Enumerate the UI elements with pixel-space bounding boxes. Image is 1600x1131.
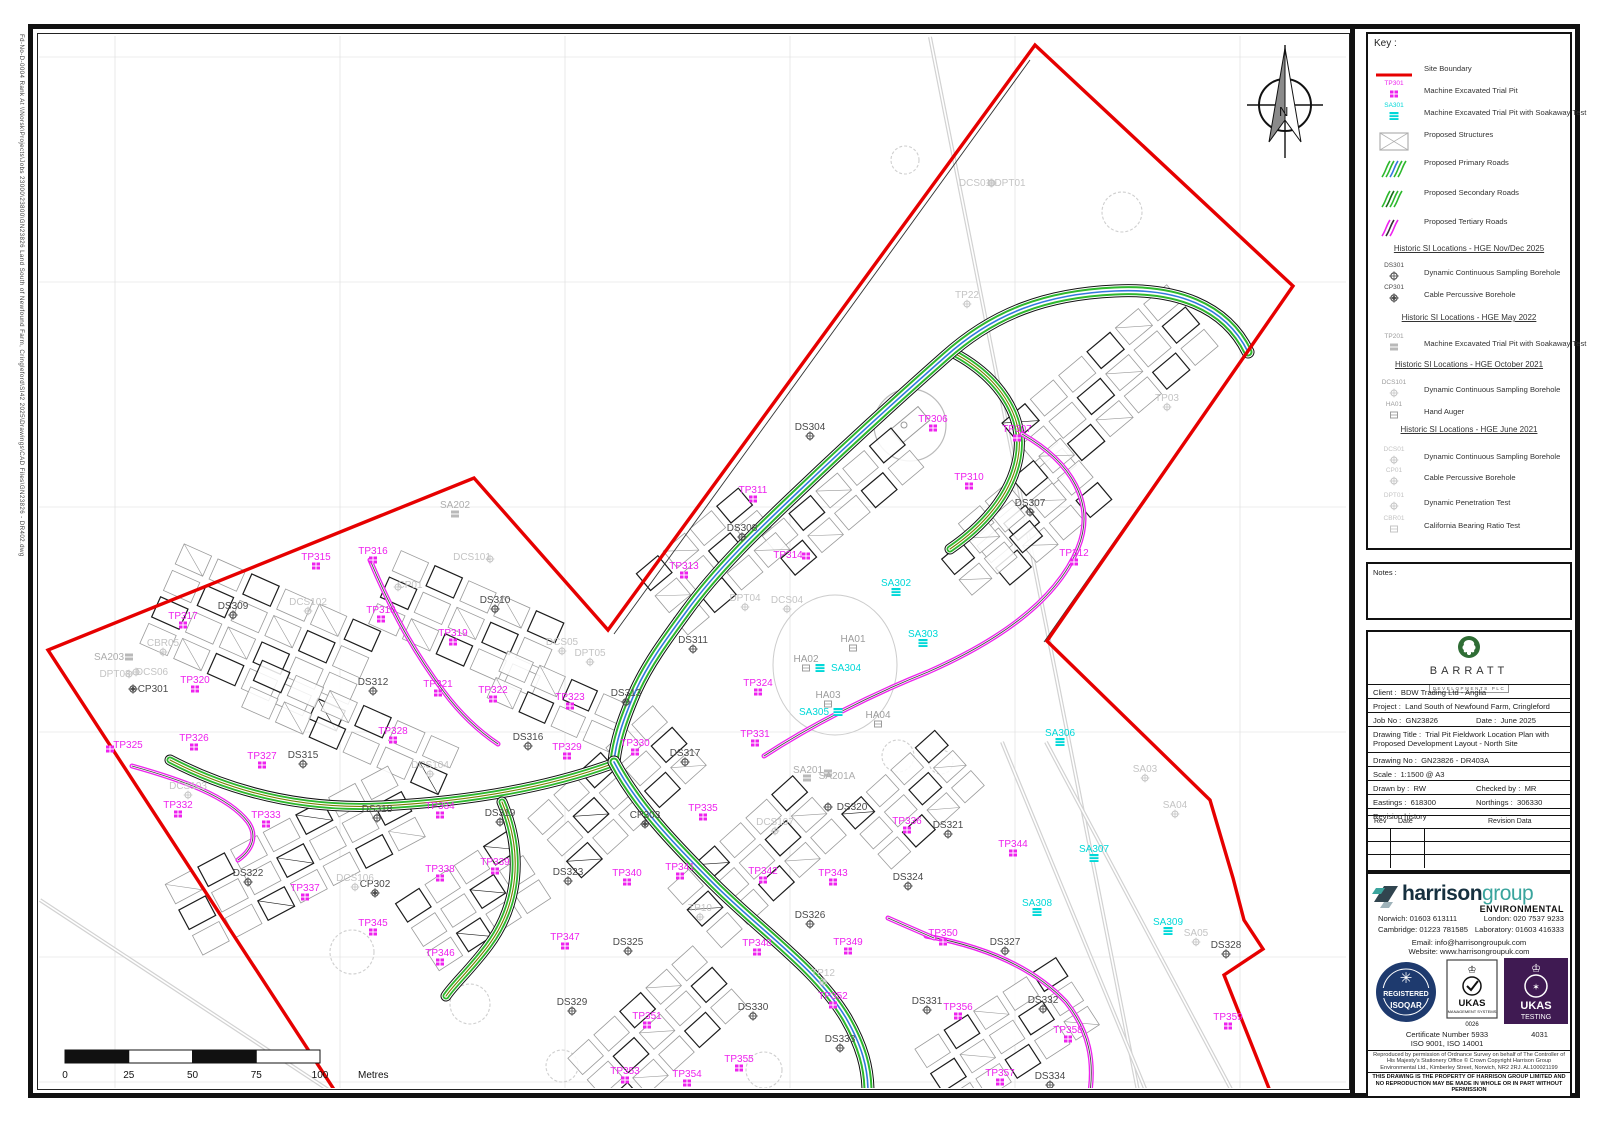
scale-value: 1:1500 @ A3 — [1400, 770, 1444, 779]
svg-text:TP357: TP357 — [985, 1068, 1015, 1079]
svg-text:♔: ♔ — [1531, 962, 1541, 975]
svg-text:CP01: CP01 — [1386, 467, 1403, 474]
map-marker-SA05: SA05 — [1184, 928, 1209, 946]
svg-text:CP01: CP01 — [397, 580, 422, 591]
svg-text:CBR05: CBR05 — [147, 638, 180, 649]
svg-text:TP318: TP318 — [366, 605, 396, 616]
marker-glyph-tp — [829, 879, 837, 886]
prim-icon — [1372, 147, 1420, 181]
map-marker-TP359: TP359 — [1213, 1012, 1243, 1030]
job-value: GN23826 — [1406, 716, 1439, 725]
marker-glyph-tp — [1064, 1036, 1072, 1043]
scale-label: Scale : — [1373, 770, 1396, 779]
marker-glyph-tp — [491, 868, 499, 875]
notes-label: Notes : — [1373, 568, 1397, 577]
marker-glyph-tp — [939, 939, 947, 946]
marker-glyph-gs — [125, 654, 133, 661]
cp-icon: CP301 — [1372, 279, 1420, 313]
drawing-title-label: Drawing Title : — [1373, 730, 1421, 739]
marker-glyph-tp — [683, 1080, 691, 1087]
tertiary-road — [888, 918, 934, 938]
map-marker-TP349: TP349 — [833, 937, 863, 955]
map-marker-DS304: DS304 — [795, 422, 826, 441]
svg-text:TP331: TP331 — [740, 729, 770, 740]
svg-text:TP321: TP321 — [423, 679, 453, 690]
map-marker-TP306: TP306 — [918, 414, 948, 432]
map-marker-DS321: DS321 — [933, 820, 964, 839]
northings-value: 306330 — [1517, 798, 1542, 807]
svg-text:TP306: TP306 — [918, 414, 948, 425]
eastings-value: 618300 — [1411, 798, 1436, 807]
certificate-row: Certificate Number 5933 ISO 9001, ISO 14… — [1368, 1030, 1570, 1050]
key-item-TP201: TP201Machine Excavated Trial Pit with So… — [1368, 336, 1570, 358]
marker-glyph-tp — [676, 873, 684, 880]
svg-text:MANAGEMENT SYSTEMS: MANAGEMENT SYSTEMS — [1448, 1009, 1497, 1014]
svg-text:♔: ♔ — [1468, 965, 1477, 976]
marker-glyph-tp — [631, 749, 639, 756]
key-item-sec: Proposed Secondary Roads — [1368, 185, 1570, 207]
site-plan-drawing: { "colors":{"red":"#e60000","magenta":"#… — [0, 0, 1600, 1131]
svg-text:TP336: TP336 — [892, 816, 922, 827]
key-header: Historic SI Locations - HGE June 2021 — [1368, 425, 1570, 434]
svg-text:DPT05: DPT05 — [574, 648, 606, 659]
revision-empty-row — [1368, 855, 1570, 868]
marker-glyph-tp — [802, 553, 810, 560]
harrison-group-block: harrisongroup ENVIRONMENTAL Norwich: 016… — [1366, 872, 1572, 1098]
svg-text:TP346: TP346 — [425, 948, 455, 959]
map-marker-SA303: SA303 — [908, 629, 938, 647]
key-header: Historic SI Locations - HGE May 2022 — [1368, 313, 1570, 322]
marker-glyph-ha — [850, 645, 857, 651]
map-marker-TP326: TP326 — [179, 733, 209, 751]
marker-glyph-tp — [436, 959, 444, 966]
marker-glyph-sa — [1164, 927, 1173, 935]
map-marker-CBR05: CBR05 — [147, 638, 180, 656]
key-header: Historic SI Locations - HGE October 2021 — [1368, 360, 1570, 369]
key-item-label: Dynamic Continuous Sampling Borehole — [1424, 452, 1560, 461]
svg-text:TP343: TP343 — [818, 868, 848, 879]
svg-text:TP324: TP324 — [743, 678, 773, 689]
drawing-no-label: Drawing No : — [1373, 756, 1417, 765]
lb-icon: CBR01 — [1372, 510, 1420, 544]
map-marker-TP331: TP331 — [740, 729, 770, 747]
marker-glyph-tp — [1009, 850, 1017, 857]
marker-glyph-tp — [449, 639, 457, 646]
marker-glyph-tp — [566, 703, 574, 710]
map-marker-DCS01: DCS01 — [959, 178, 996, 189]
harrison-email: Email: info@harrisongroupuk.com — [1368, 938, 1570, 947]
svg-text:SA301: SA301 — [1384, 102, 1404, 109]
svg-text:TP347: TP347 — [550, 932, 580, 943]
gs-icon: TP201 — [1372, 328, 1420, 362]
map-marker-SA308: SA308 — [1022, 898, 1052, 916]
svg-text:SA203: SA203 — [94, 652, 124, 663]
key-item-label: Dynamic Penetration Test — [1424, 498, 1510, 507]
map-marker-TP316: TP316 — [358, 546, 388, 564]
marker-glyph-sa — [1056, 738, 1065, 746]
map-marker-TP324: TP324 — [743, 678, 773, 696]
site-plan-map: TP306TP307TP310TP311TP312TP313TP314TP315… — [0, 0, 1600, 1131]
date-col: Date — [1398, 818, 1413, 825]
rev-col: Rev — [1374, 818, 1386, 825]
svg-text:TP351: TP351 — [632, 1011, 662, 1022]
svg-text:TP330: TP330 — [620, 738, 650, 749]
svg-text:SA304: SA304 — [831, 663, 861, 674]
svg-text:CBR01: CBR01 — [1384, 515, 1405, 522]
marker-glyph-tp — [1070, 559, 1078, 566]
eastings-northings-row: Eastings : 618300 Northings : 306330 — [1368, 794, 1570, 808]
map-marker-DS325: DS325 — [613, 937, 644, 956]
drawn-checked-row: Drawn by : RW Checked by : MR — [1368, 780, 1570, 794]
iso-standards: ISO 9001, ISO 14001 — [1411, 1039, 1484, 1048]
map-marker-TP355: TP355 — [724, 1054, 754, 1072]
svg-text:SA302: SA302 — [881, 578, 911, 589]
svg-text:DCS106: DCS106 — [336, 873, 374, 884]
svg-text:TP311: TP311 — [739, 485, 768, 496]
marker-glyph-gs — [1390, 344, 1398, 351]
key-item-label: Machine Excavated Trial Pit with Soakawa… — [1424, 339, 1586, 348]
key-item-label: Proposed Secondary Roads — [1424, 188, 1519, 197]
marker-glyph-tp — [563, 753, 571, 760]
map-marker-DPT03: DPT03 — [99, 669, 133, 680]
harrison-logo: harrisongroup ENVIRONMENTAL — [1368, 874, 1570, 914]
key-item-label: Cable Percussive Borehole — [1424, 290, 1516, 299]
eastings-label: Eastings : — [1373, 798, 1406, 807]
marker-glyph-tp — [829, 1002, 837, 1009]
svg-text:TP341: TP341 — [665, 862, 695, 873]
revision-table-header: Rev Date Revision Data — [1368, 816, 1570, 829]
marker-glyph-ds — [823, 802, 833, 812]
marker-glyph-tp — [389, 737, 397, 744]
drawn-value: RW — [1414, 784, 1427, 793]
marker-glyph-tp — [680, 572, 688, 579]
marker-glyph-sa — [919, 639, 928, 647]
svg-text:TP329: TP329 — [552, 742, 582, 753]
contact-london: London: 020 7537 9233 — [1484, 914, 1564, 923]
marker-glyph-tp — [749, 496, 757, 503]
map-marker-DS330: DS330 — [738, 1002, 769, 1021]
harrison-word: harrison — [1402, 882, 1482, 905]
marker-glyph-cp — [1389, 293, 1399, 303]
svg-text:SA309: SA309 — [1153, 917, 1183, 928]
marker-glyph-tp — [191, 686, 199, 693]
marker-glyph-tp — [436, 875, 444, 882]
marker-glyph-sa — [816, 664, 825, 672]
marker-glyph-gs — [451, 511, 459, 518]
key-item-label: Proposed Primary Roads — [1424, 158, 1509, 167]
client-row: Client : BDW Trading Ltd - Anglia — [1368, 684, 1570, 698]
marker-glyph-tp — [751, 740, 759, 747]
svg-text:TP12: TP12 — [811, 968, 835, 979]
marker-glyph-lb — [1391, 526, 1398, 532]
marker-glyph-tp — [844, 948, 852, 955]
map-marker-TP03: TP03 — [1155, 393, 1179, 411]
svg-text:TP333: TP333 — [251, 810, 281, 821]
svg-text:DCS05: DCS05 — [546, 637, 579, 648]
svg-text:SA202: SA202 — [440, 500, 470, 511]
svg-text:TP314: TP314 — [773, 550, 803, 561]
svg-text:TP201: TP201 — [1384, 333, 1404, 340]
map-marker-SA302: SA302 — [881, 578, 911, 596]
map-marker-SA307: SA307 — [1079, 844, 1109, 862]
map-marker-TP334: TP334 — [425, 801, 455, 819]
marker-glyph-tp — [699, 814, 707, 821]
key-item-label: California Bearing Ratio Test — [1424, 521, 1520, 530]
svg-text:TP354: TP354 — [672, 1069, 702, 1080]
marker-glyph-tp — [190, 744, 198, 751]
svg-text:TP355: TP355 — [724, 1054, 754, 1065]
map-marker-TP315: TP315 — [301, 552, 331, 570]
svg-text:DPT01: DPT01 — [994, 178, 1026, 189]
house-cluster — [842, 730, 984, 869]
map-marker-TP354: TP354 — [672, 1069, 702, 1087]
group-word: group — [1482, 882, 1533, 905]
svg-text:UKAS: UKAS — [1520, 1000, 1551, 1012]
svg-text:DCS101: DCS101 — [1382, 379, 1407, 386]
map-marker-DS315: DS315 — [288, 750, 319, 769]
notes-panel: Notes : — [1366, 562, 1572, 620]
key-item-tert: Proposed Tertiary Roads — [1368, 214, 1570, 236]
key-item-label: Proposed Tertiary Roads — [1424, 217, 1507, 226]
map-marker-DPT05: DPT05 — [574, 648, 606, 666]
job-label: Job No : — [1373, 716, 1401, 725]
marker-glyph-tp — [996, 1079, 1004, 1086]
svg-text:HA01: HA01 — [840, 634, 865, 645]
marker-glyph-tp — [623, 879, 631, 886]
key-item-label: Dynamic Continuous Sampling Borehole — [1424, 385, 1560, 394]
map-marker-DS326: DS326 — [795, 910, 826, 929]
svg-text:TP335: TP335 — [688, 803, 718, 814]
svg-text:0: 0 — [62, 1070, 68, 1081]
svg-text:HA03: HA03 — [815, 690, 840, 701]
svg-text:DCS04: DCS04 — [771, 595, 804, 606]
map-marker-DS329: DS329 — [557, 997, 588, 1016]
svg-text:TP301: TP301 — [1384, 80, 1404, 87]
ukas-testing-badge: ♔ ✶ UKAS TESTING — [1504, 958, 1568, 1024]
marker-glyph-tp — [1013, 435, 1021, 442]
contact-laboratory: Laboratory: 01603 416333 — [1475, 925, 1564, 934]
map-marker-SA304: SA304 — [816, 663, 862, 674]
svg-text:75: 75 — [251, 1070, 263, 1081]
property-note: THIS DRAWING IS THE PROPERTY OF HARRISON… — [1368, 1072, 1570, 1094]
svg-text:TP334: TP334 — [425, 801, 455, 812]
svg-text:UKAS: UKAS — [1459, 998, 1486, 1009]
contact-norwich: Norwich: 01603 613111 — [1378, 914, 1457, 923]
svg-text:DCS102: DCS102 — [289, 597, 327, 608]
svg-text:TP337: TP337 — [290, 883, 320, 894]
marker-glyph-tp — [369, 557, 377, 564]
map-marker-TP335: TP335 — [688, 803, 718, 821]
svg-text:TP339: TP339 — [480, 857, 510, 868]
marker-glyph-tp — [754, 689, 762, 696]
drawn-label: Drawn by : — [1373, 784, 1409, 793]
svg-text:HA04: HA04 — [865, 710, 890, 721]
key-item-label: Machine Excavated Trial Pit with Soakawa… — [1424, 108, 1586, 117]
svg-text:TP359: TP359 — [1213, 1012, 1243, 1023]
svg-text:0026: 0026 — [1465, 1022, 1479, 1028]
house-cluster — [568, 946, 746, 1118]
map-marker-TP343: TP343 — [818, 868, 848, 886]
marker-glyph-tp — [735, 1065, 743, 1072]
map-marker-SA203: SA203 — [94, 652, 133, 663]
map-marker-TP312: TP312 — [1059, 548, 1089, 566]
marker-glyph-tp — [965, 483, 973, 490]
svg-text:CP301: CP301 — [138, 684, 169, 695]
barratt-name: BARRATT — [1368, 665, 1570, 677]
svg-text:TP342: TP342 — [748, 866, 778, 877]
harrison-contacts: Norwich: 01603 613111 London: 020 7537 9… — [1368, 914, 1570, 938]
svg-text:SA03: SA03 — [1133, 764, 1158, 775]
key-item-label: Proposed Structures — [1424, 130, 1493, 139]
svg-text:SA04: SA04 — [1163, 800, 1188, 811]
marker-glyph-tp — [436, 812, 444, 819]
scale-row: Scale : 1:1500 @ A3 — [1368, 766, 1570, 780]
map-marker-TP344: TP344 — [998, 839, 1028, 857]
map-marker-TP22: TP22 — [955, 290, 979, 308]
barratt-logo: BARRATT DEVELOPMENTS PLC — [1368, 632, 1570, 684]
svg-text:TP349: TP349 — [833, 937, 863, 948]
tert-icon — [1372, 206, 1420, 240]
svg-text:Fd-No-D-0004 Rank At \\Norsk: Fd-No-D-0004 Rank At \\Norsk\Projects\Jo… — [18, 34, 25, 557]
environmental-label: ENVIRONMENTAL — [1480, 904, 1564, 914]
svg-text:TP338: TP338 — [425, 864, 455, 875]
marker-glyph-tp — [262, 821, 270, 828]
project-value: Land South of Newfound Farm, Cringleford — [1405, 702, 1550, 711]
isoqar-badge: ✳ REGISTERED ISOQAR — [1376, 962, 1436, 1022]
key-item-label: Hand Auger — [1424, 407, 1464, 416]
marker-glyph-ha — [875, 721, 882, 727]
marker-glyph-tp — [489, 696, 497, 703]
svg-text:TP307: TP307 — [1002, 424, 1032, 435]
svg-text:✳: ✳ — [1400, 970, 1413, 987]
svg-text:TP340: TP340 — [612, 868, 642, 879]
map-marker-DCS103: DCS103 — [169, 781, 207, 799]
map-marker-TP337: TP337 — [290, 883, 320, 901]
map-marker-SA03: SA03 — [1133, 764, 1158, 782]
map-marker-TP345: TP345 — [358, 918, 388, 936]
svg-text:TP22: TP22 — [955, 290, 979, 301]
client-value: BDW Trading Ltd - Anglia — [1401, 688, 1486, 697]
date-label: Date : — [1476, 716, 1496, 725]
client-label: Client : — [1373, 688, 1397, 697]
barratt-tree-icon — [1454, 635, 1484, 659]
svg-text:SA308: SA308 — [1022, 898, 1052, 909]
revision-data-col: Revision Data — [1488, 818, 1532, 825]
map-marker-TP320: TP320 — [180, 675, 210, 693]
revision-empty-row — [1368, 829, 1570, 842]
map-marker-TP340: TP340 — [612, 868, 642, 886]
map-marker-HA04: HA04 — [865, 710, 890, 727]
revision-table: Rev Date Revision Data — [1368, 815, 1570, 870]
marker-glyph-tp — [106, 746, 114, 753]
drawing-no-row: Drawing No : GN23826 - DR403A — [1368, 752, 1570, 766]
project-row: Project : Land South of Newfound Farm, C… — [1368, 698, 1570, 712]
harrison-arrow-icon — [1372, 880, 1402, 910]
map-marker-DS311: DS311 — [678, 635, 708, 654]
marker-glyph-gh — [1390, 477, 1399, 486]
svg-text:TP358: TP358 — [1053, 1025, 1083, 1036]
map-marker-CP301: CP301 — [128, 684, 169, 695]
svg-text:SA307: SA307 — [1079, 844, 1109, 855]
svg-text:DCS01: DCS01 — [959, 178, 992, 189]
svg-text:HA01: HA01 — [1386, 401, 1403, 408]
marker-glyph-tp — [301, 894, 309, 901]
north-arrow: N — [1247, 45, 1323, 158]
map-marker-DS324: DS324 — [893, 872, 924, 891]
map-marker-SA04: SA04 — [1163, 800, 1188, 818]
testing-number: 4031 — [1531, 1030, 1548, 1039]
svg-text:DPT04: DPT04 — [729, 593, 761, 604]
marker-glyph-tp — [954, 1013, 962, 1020]
marker-glyph-tp — [179, 622, 187, 629]
svg-text:ISOQAR: ISOQAR — [1390, 1001, 1422, 1010]
marker-glyph-tp — [1224, 1023, 1232, 1030]
marker-glyph-tp — [561, 943, 569, 950]
map-marker-DS333: DS333 — [825, 1034, 856, 1053]
key-header: Historic SI Locations - HGE Nov/Dec 2025 — [1368, 244, 1570, 253]
house-cluster — [1002, 285, 1218, 484]
northings-label: Northings : — [1476, 798, 1513, 807]
checked-value: MR — [1525, 784, 1537, 793]
svg-text:TP327: TP327 — [247, 751, 277, 762]
checked-label: Checked by : — [1476, 784, 1520, 793]
svg-text:TP326: TP326 — [179, 733, 209, 744]
map-marker-CP01: CP01 — [394, 580, 423, 591]
svg-text:SA305: SA305 — [799, 707, 829, 718]
os-copyright-note: Reproduced by permission of Ordnance Sur… — [1368, 1050, 1570, 1072]
svg-text:TP325: TP325 — [113, 740, 143, 751]
harrison-website: Website: www.harrisongroupuk.com — [1368, 947, 1570, 956]
map-marker-DS312: DS312 — [358, 677, 389, 696]
scale-bar: 0255075100Metres — [62, 1050, 388, 1081]
svg-text:DCS101: DCS101 — [453, 552, 491, 563]
svg-text:TP345: TP345 — [358, 918, 388, 929]
project-label: Project : — [1373, 702, 1401, 711]
marker-glyph-sa — [1033, 908, 1042, 916]
map-marker-TP321: TP321 — [423, 679, 453, 697]
svg-text:DS301: DS301 — [1384, 262, 1404, 269]
marker-glyph-tp — [434, 690, 442, 697]
map-marker-DS323: DS323 — [553, 867, 584, 886]
map-marker-SA202: SA202 — [440, 500, 470, 518]
svg-text:TP03: TP03 — [1155, 393, 1179, 404]
marker-glyph-sa — [834, 708, 843, 716]
svg-text:REGISTERED: REGISTERED — [1383, 991, 1429, 998]
map-marker-DPT01: DPT01 — [988, 178, 1026, 189]
map-marker-DCS06: DCS06 — [132, 667, 169, 678]
key-item-HA01: HA01Hand Auger — [1368, 404, 1570, 426]
certificate-number: Certificate Number 5933 — [1406, 1030, 1488, 1039]
svg-text:25: 25 — [123, 1070, 135, 1081]
contact-cambridge: Cambridge: 01223 781585 — [1378, 925, 1468, 934]
svg-text:TESTING: TESTING — [1521, 1014, 1551, 1021]
svg-text:SA05: SA05 — [1184, 928, 1209, 939]
svg-text:TP320: TP320 — [180, 675, 210, 686]
svg-text:DPT01: DPT01 — [1384, 492, 1405, 499]
svg-text:CP301: CP301 — [1384, 284, 1404, 291]
svg-text:N: N — [1279, 104, 1288, 119]
revision-empty-row — [1368, 842, 1570, 855]
key-item-struct: Proposed Structures — [1368, 127, 1570, 149]
house-cluster — [396, 831, 551, 971]
svg-text:DCS107: DCS107 — [756, 817, 794, 828]
key-item-label: Machine Excavated Trial Pit — [1424, 86, 1518, 95]
map-marker-DS320: DS320 — [823, 802, 868, 813]
map-marker-DS316: DS316 — [513, 732, 544, 751]
map-marker-HA03: HA03 — [815, 690, 840, 707]
badges-graphic: ✳ REGISTERED ISOQAR ♔ UKAS MANAGEMENT SY… — [1368, 956, 1570, 1030]
svg-text:TP313: TP313 — [669, 561, 699, 572]
